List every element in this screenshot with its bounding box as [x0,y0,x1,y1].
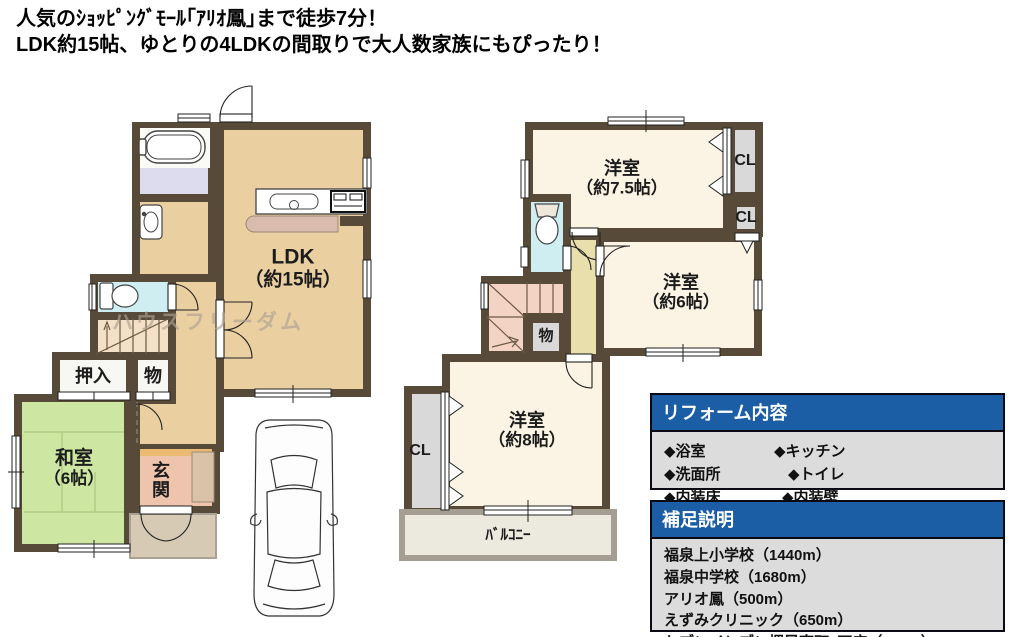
reform-box-title: リフォーム内容 [652,395,1003,432]
entrance-porch [130,514,216,558]
room75-size: （約7.5帖） [576,179,668,198]
genkan-step [192,452,214,502]
washitsu-name: 和室 [55,448,93,469]
room8-name: 洋室 [509,410,545,430]
floorplan-page: 人気のｼｮｯﾋﾟﾝｸﾞﾓｰﾙ｢ｱﾘｵ鳳｣まで徒歩7分！LDK約15帖、ゆとりの4… [0,0,1011,637]
washitsu-size: （6帖） [44,469,104,488]
watermark: ハウスフリーダム [112,306,304,336]
toilet-2f-fixture [535,204,559,244]
note-line: 福泉上小学校（1440m） [664,545,991,567]
car [251,420,338,616]
label-closet-room8: CL [409,442,430,460]
label-balcony: ﾊﾞﾙｺﾆｰ [485,528,530,545]
wash-basin [140,205,162,239]
note-box: 補足説明 福泉上小学校（1440m） 福泉中学校（1680m） アリオ鳳（500… [650,500,1005,632]
counter-ledge [246,216,338,232]
room-label-6: 洋室 （約6帖） [642,272,719,311]
room-label-8: 洋室 （約8帖） [488,410,565,449]
room-label-storage-2f: 物 [538,329,553,346]
bathtub [139,131,205,163]
room-label-ldk: LDK （約15帖） [244,246,341,291]
room6-size: （約6帖） [642,293,719,312]
ldk-size: （約15帖） [244,269,341,290]
note-line: アリオ鳳（500m） [664,589,991,611]
note-box-lines: 福泉上小学校（1440m） 福泉中学校（1680m） アリオ鳳（500m） えず… [652,539,1003,637]
room-label-washitsu: 和室 （6帖） [44,448,104,488]
room-label-genkan: 玄関 [150,462,172,500]
note-line: えずみクリニック（650m） [664,610,991,632]
kitchen-counter [246,189,367,232]
room6-name: 洋室 [663,272,699,292]
ldk-name: LDK [271,246,314,269]
reform-box: リフォーム内容 ◆浴室 ◆キッチン ◆洗面所 ◆トイレ ◆内装床 ◆内装壁 [650,393,1005,490]
note-line: セブンイレブン堺鳳南町3丁店（510m） [664,632,991,637]
reform-item: ◆キッチン [774,440,991,461]
reform-item: ◆トイレ [774,463,991,484]
room-label-75: 洋室 （約7.5帖） [576,158,668,197]
reform-item: ◆洗面所 [664,463,774,484]
note-line: 福泉中学校（1680m） [664,567,991,589]
front-door [140,506,192,514]
room75-name: 洋室 [604,158,640,178]
label-closet-top: CL [734,152,755,170]
label-closet-mid: CL [735,209,756,227]
reform-item: ◆浴室 [664,440,774,461]
note-box-title: 補足説明 [652,502,1003,539]
room-label-storage-1f: 物 [144,366,162,386]
room8-size: （約8帖） [488,431,565,450]
room-label-oshiire: 押入 [75,366,111,386]
